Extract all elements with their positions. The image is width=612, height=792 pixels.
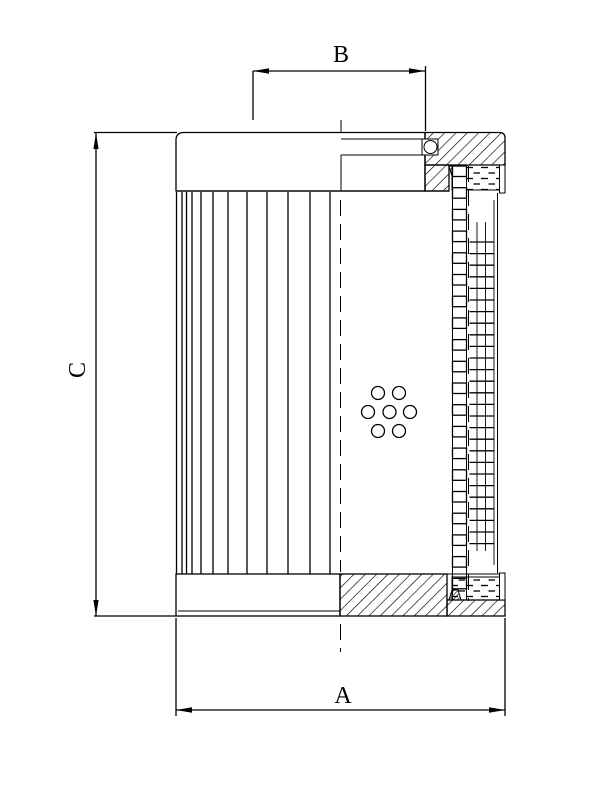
dimension-c: C: [65, 133, 177, 617]
outer-shell-bottom-section: [500, 573, 506, 600]
filter-element-technical-drawing: B C A: [0, 0, 612, 792]
drain-holes: [362, 387, 417, 438]
support-mesh-rungs: [470, 242, 495, 544]
outer-shell-top-section: [500, 165, 506, 193]
support-mesh: [470, 193, 498, 573]
dimension-b-label: B: [333, 42, 349, 68]
drawing-page: B C A: [0, 0, 612, 792]
o-ring: [422, 139, 438, 155]
bottom-end-cap: [176, 573, 505, 616]
dimension-b: B: [253, 42, 426, 131]
pleated-media: [177, 192, 331, 574]
centerline: [341, 120, 342, 652]
core-tube: [453, 166, 467, 600]
dimension-c-label: C: [65, 362, 91, 378]
dimension-a-label: A: [334, 683, 352, 709]
